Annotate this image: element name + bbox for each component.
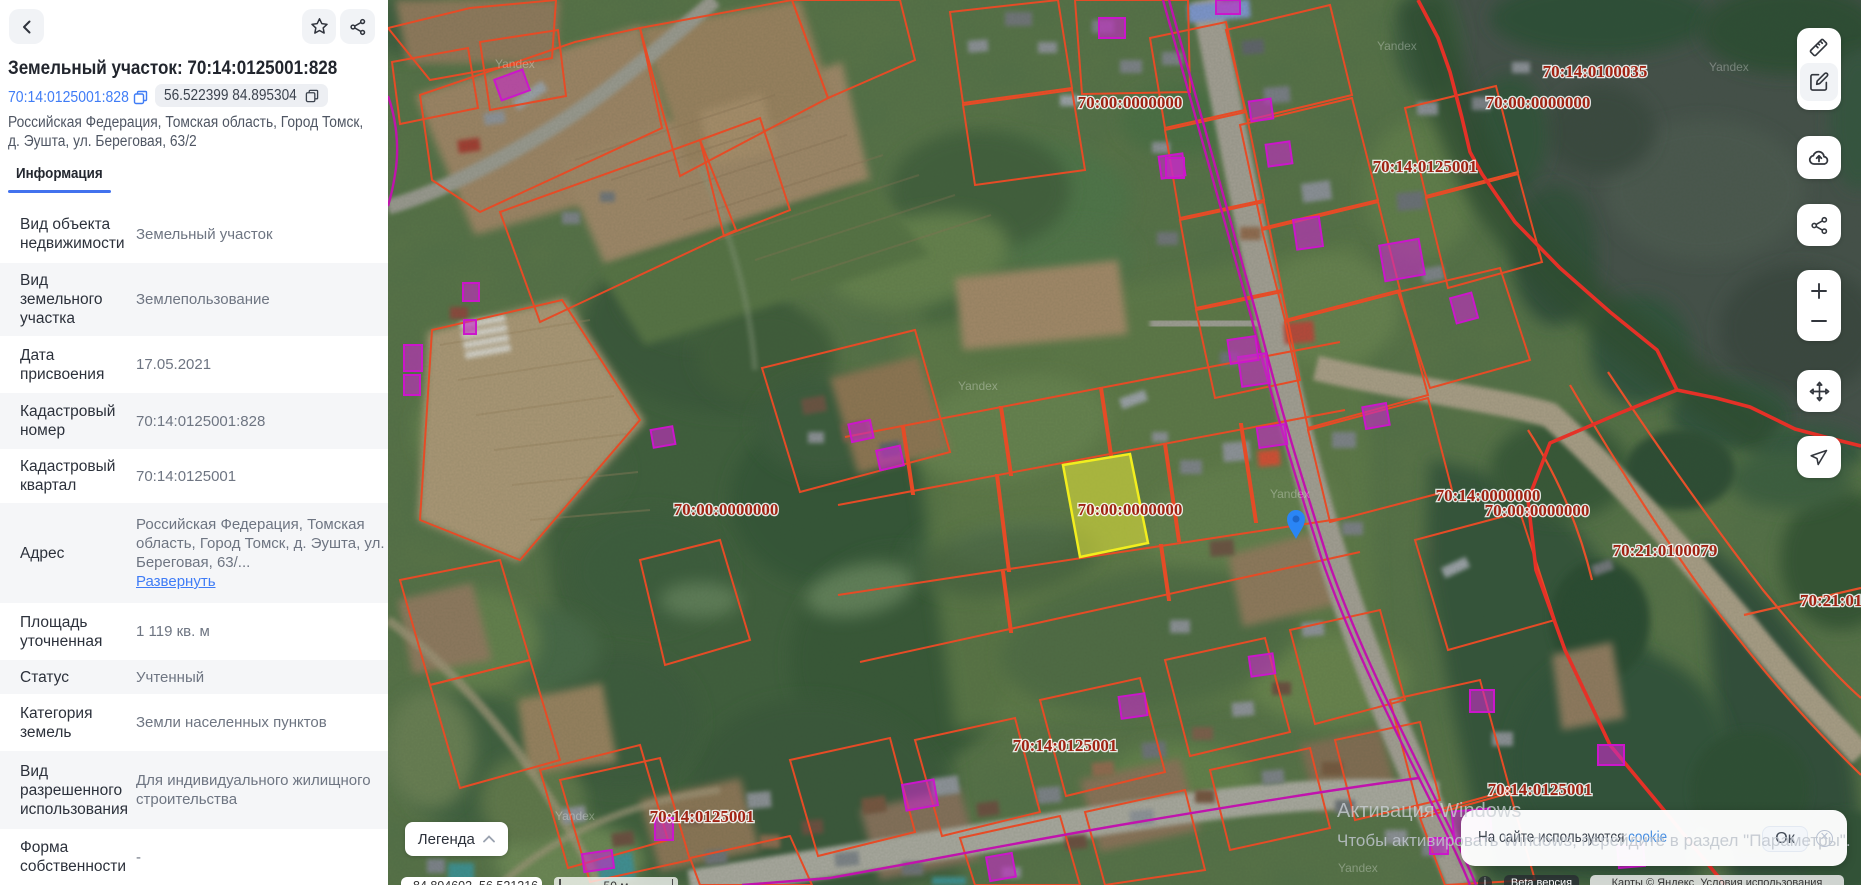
svg-text:Yandex: Yandex xyxy=(958,379,998,393)
svg-text:70:00:0000000: 70:00:0000000 xyxy=(1078,500,1183,519)
svg-text:70:14:0100035: 70:14:0100035 xyxy=(1543,62,1648,81)
svg-text:70:14:0125001: 70:14:0125001 xyxy=(1373,157,1478,176)
svg-text:70:14:0125001: 70:14:0125001 xyxy=(650,807,755,826)
svg-text:Yandex: Yandex xyxy=(1270,487,1310,501)
svg-text:Yandex: Yandex xyxy=(495,57,535,71)
svg-text:70:21:0100079: 70:21:0100079 xyxy=(1800,591,1861,610)
svg-text:Yandex: Yandex xyxy=(1709,60,1749,74)
svg-text:70:00:0000000: 70:00:0000000 xyxy=(1485,501,1590,520)
svg-text:70:00:0000000: 70:00:0000000 xyxy=(1486,93,1591,112)
svg-text:70:21:0100079: 70:21:0100079 xyxy=(1613,541,1718,560)
svg-text:70:00:0000000: 70:00:0000000 xyxy=(1078,93,1183,112)
svg-text:70:14:0125001: 70:14:0125001 xyxy=(1488,780,1593,799)
svg-text:Yandex: Yandex xyxy=(1377,39,1417,53)
svg-text:Yandex: Yandex xyxy=(555,809,595,823)
svg-text:70:14:0125001: 70:14:0125001 xyxy=(1013,736,1118,755)
svg-text:Yandex: Yandex xyxy=(1338,861,1378,875)
svg-text:70:00:0000000: 70:00:0000000 xyxy=(674,500,779,519)
